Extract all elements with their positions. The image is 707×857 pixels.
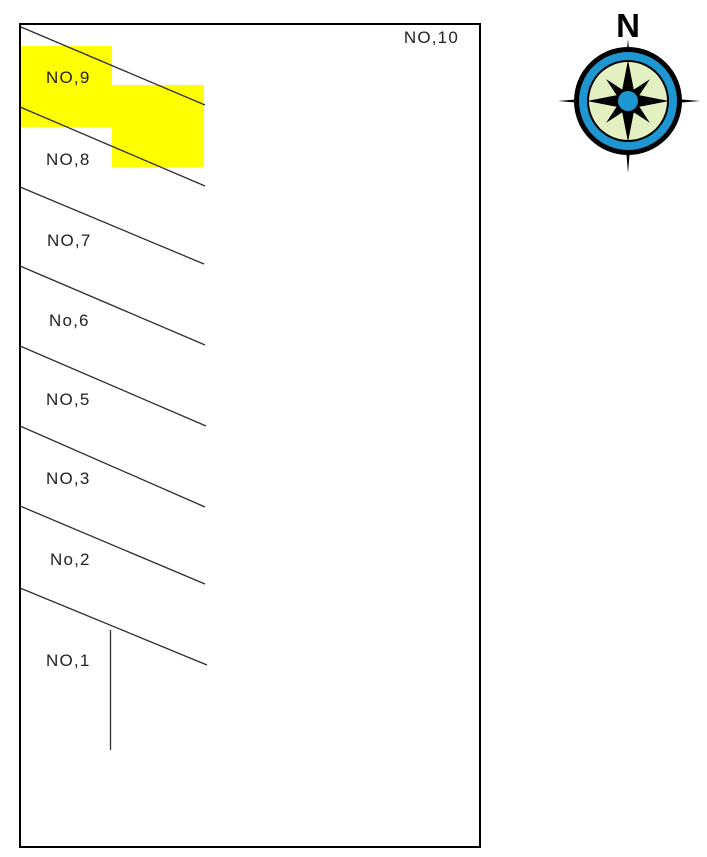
- parcel-label-no10: NO,10: [404, 28, 459, 47]
- parcel-divider-line-3: [20, 187, 204, 264]
- compass-rose-icon: N: [558, 7, 700, 173]
- compass-north-label: N: [616, 7, 640, 44]
- parcel-divider-line-4: [20, 266, 205, 345]
- plot-boundary: [20, 24, 480, 847]
- parcel-divider-line-5: [20, 346, 206, 426]
- site-plan-drawing: NO,10 NO,9 NO,8 NO,7 No,6 NO,5 NO,3 No,2…: [0, 0, 707, 857]
- parcel-label-no7: NO,7: [47, 231, 91, 250]
- parcel-label-no5: NO,5: [46, 390, 90, 409]
- parcel-divider-line-7: [20, 506, 205, 584]
- highlighted-area: [21, 46, 204, 167]
- parcel-label-no3: NO,3: [46, 469, 90, 488]
- parcel-label-no1: NO,1: [46, 651, 90, 670]
- parcel-divider-line-6: [20, 426, 205, 507]
- site-plan-page: NO,10 NO,9 NO,8 NO,7 No,6 NO,5 NO,3 No,2…: [0, 0, 707, 857]
- parcel-label-no8: NO,8: [46, 150, 90, 169]
- parcel-label-no6: No,6: [49, 311, 90, 330]
- parcel-label-no9: NO,9: [46, 68, 90, 87]
- parcel-label-no2: No,2: [50, 550, 91, 569]
- compass-center-dot: [618, 91, 638, 111]
